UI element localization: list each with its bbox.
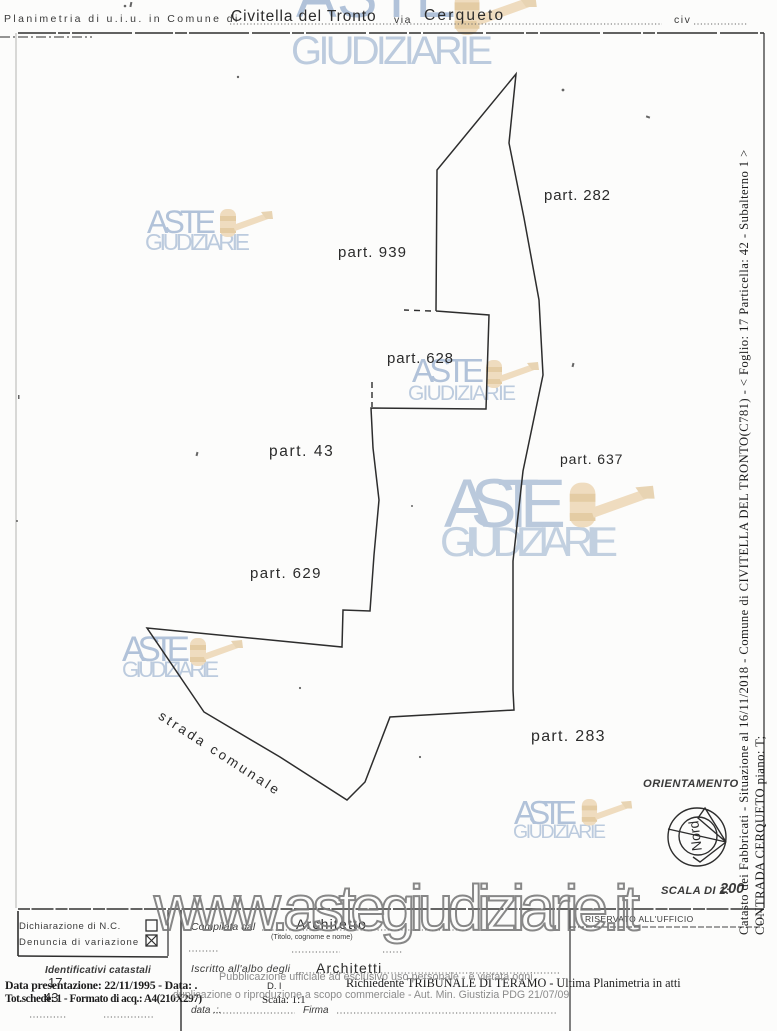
svg-text:www.astegiudiziarie.it: www.astegiudiziarie.it bbox=[153, 872, 640, 944]
